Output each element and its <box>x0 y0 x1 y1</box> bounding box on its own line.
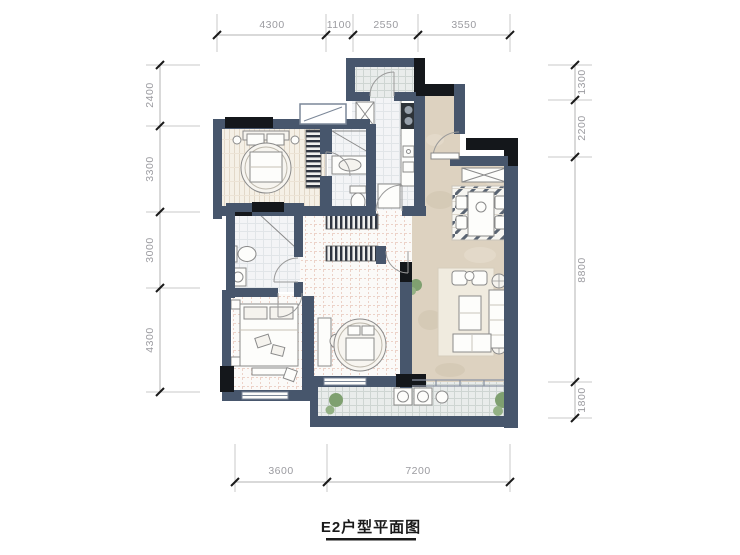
dim-right: 1300 2200 8800 1800 <box>548 61 592 422</box>
dim-label: 3000 <box>144 237 156 262</box>
wall <box>294 203 303 257</box>
window-black-band <box>225 117 273 128</box>
dim-label: 4300 <box>259 19 284 31</box>
wall <box>320 176 332 216</box>
nightstand <box>231 300 240 309</box>
pillow <box>348 326 360 335</box>
wall <box>414 92 425 216</box>
toilet-icon <box>238 247 256 262</box>
wall-black <box>220 366 234 392</box>
wall <box>334 206 376 216</box>
bed-blanket <box>346 338 374 360</box>
armchair <box>472 271 487 285</box>
sink-icon <box>403 162 414 172</box>
wall-black <box>252 202 284 212</box>
chair-icon <box>456 216 467 229</box>
dim-bottom: 3600 7200 <box>231 444 514 492</box>
wardrobe-icon <box>326 214 378 229</box>
side-table <box>465 272 474 281</box>
plant-icon <box>493 406 503 416</box>
wall <box>213 119 222 219</box>
dim-label: 8800 <box>576 257 588 282</box>
sink-icon <box>403 146 414 157</box>
balcony-table <box>436 391 448 403</box>
wardrobe-icon <box>326 246 378 261</box>
wall <box>346 92 370 101</box>
burner <box>405 117 413 125</box>
nightstand <box>231 357 240 366</box>
dim-label: 4300 <box>144 327 156 352</box>
dim-label: 1100 <box>327 19 352 31</box>
title-block: E2户型平面图 <box>321 518 421 541</box>
basin-icon <box>339 159 361 171</box>
wall <box>226 203 235 298</box>
wardrobe-icon <box>306 130 321 188</box>
wall <box>366 124 376 216</box>
entry-door-leaf <box>431 153 459 159</box>
dim-label: 2550 <box>373 19 398 31</box>
burner <box>405 106 413 114</box>
sofa-icon <box>489 290 506 348</box>
wall <box>454 84 465 134</box>
wall <box>504 166 518 428</box>
toilet-tank <box>350 186 366 193</box>
wall <box>310 416 518 427</box>
bed-bench <box>252 368 288 375</box>
dim-label: 7200 <box>405 465 430 477</box>
plant-icon <box>329 393 343 407</box>
nightstand <box>291 136 299 144</box>
page-title: E2户型平面图 <box>321 518 421 536</box>
nightstand <box>233 136 241 144</box>
wall <box>346 58 422 67</box>
title-underline <box>326 538 416 541</box>
dim-top: 4300 1100 2550 3550 <box>213 14 514 52</box>
dim-label: 1300 <box>576 69 588 94</box>
dim-left: 2400 3300 3000 4300 <box>144 61 200 396</box>
pillow <box>244 307 267 319</box>
dim-label: 1800 <box>576 387 588 412</box>
dim-label: 3550 <box>451 19 476 31</box>
dining-table-icon <box>468 192 494 236</box>
dim-label: 3300 <box>144 156 156 181</box>
pillow <box>362 326 374 335</box>
wall <box>226 288 278 297</box>
plant-icon <box>326 406 335 415</box>
floor-plan-canvas: 4300 1100 2550 3550 2400 3300 3000 4300 <box>0 0 740 555</box>
master-bedroom-furniture <box>233 130 321 193</box>
armchair <box>452 271 467 285</box>
floor-plan-page: 4300 1100 2550 3550 2400 3300 3000 4300 <box>0 0 740 555</box>
desk <box>318 318 331 366</box>
dim-label: 2400 <box>144 82 156 107</box>
dim-label: 3600 <box>268 465 293 477</box>
dim-label: 2200 <box>576 115 588 140</box>
wall <box>376 246 386 264</box>
chair-icon <box>456 196 467 209</box>
